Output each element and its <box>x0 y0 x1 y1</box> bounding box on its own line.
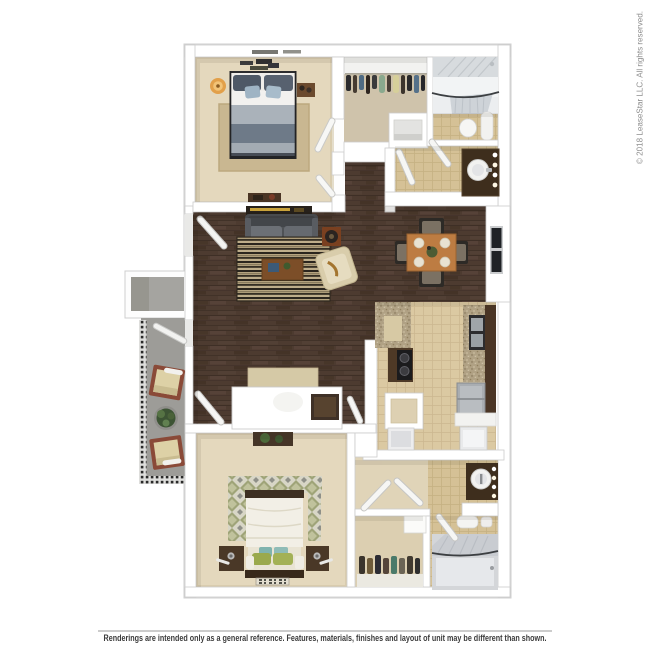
svg-text:Renderings are intended only a: Renderings are intended only as a genera… <box>104 633 547 643</box>
svg-text:© 2018 LeaseStar LLC. All righ: © 2018 LeaseStar LLC. All rights reserve… <box>635 11 645 164</box>
